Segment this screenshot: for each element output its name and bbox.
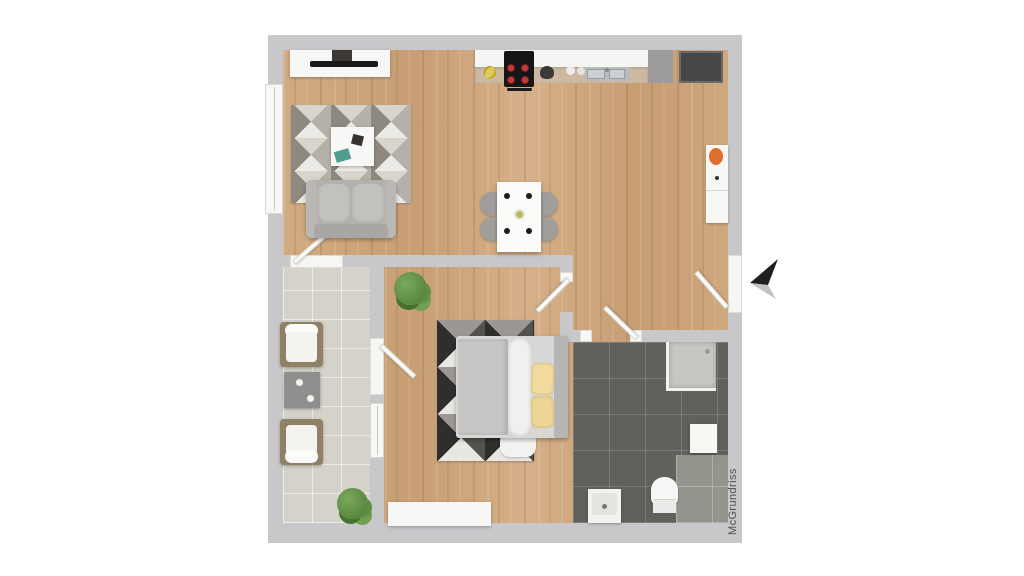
sofa-cushion	[318, 184, 350, 224]
washbasin	[588, 489, 621, 523]
place-setting	[504, 193, 510, 199]
living-room-window	[265, 84, 283, 214]
watermark-text: McGrundriss	[727, 447, 743, 557]
sink-basin	[587, 69, 605, 79]
jar	[577, 67, 585, 75]
plant	[337, 488, 368, 519]
shower	[666, 342, 716, 391]
burner	[507, 64, 515, 72]
chair-cushion	[286, 332, 317, 362]
bathroom-door-frame-left	[580, 330, 592, 342]
burner	[507, 76, 515, 84]
wall-balcony-bedroom-mid	[370, 395, 384, 403]
wall-balcony-bedroom-lower	[370, 458, 384, 523]
chair-backrest	[285, 450, 318, 463]
center-bowl	[514, 209, 525, 220]
toilet-tank	[653, 499, 676, 513]
place-setting	[504, 228, 510, 234]
entrance-door-sill	[728, 255, 742, 313]
oven-handle	[507, 88, 532, 91]
decor-dot	[715, 176, 719, 180]
burner	[521, 76, 529, 84]
bathroom-cabinet	[690, 424, 717, 453]
cooktop	[504, 51, 534, 87]
sofa-cushion	[352, 184, 384, 224]
sofa	[306, 180, 396, 238]
plant	[394, 272, 427, 305]
pillow-yellow	[530, 395, 555, 428]
flower-pot	[484, 66, 496, 79]
bed-blanket	[458, 339, 508, 435]
patio-chair	[280, 419, 323, 465]
double-bed	[456, 336, 568, 438]
coffee-table	[331, 127, 374, 166]
shower-drain	[705, 349, 710, 354]
bedroom-window	[370, 403, 384, 458]
wall-bathroom-top-left	[573, 330, 580, 342]
tv	[310, 61, 378, 67]
book-teal	[334, 148, 351, 163]
hall-sideboard	[706, 145, 728, 223]
jar	[566, 66, 575, 75]
cup	[307, 395, 314, 402]
patio-chair	[280, 322, 323, 367]
floorplan-stage: McGrundriss	[0, 0, 1024, 576]
pillow-yellow	[530, 362, 555, 395]
window-mullion	[274, 87, 275, 211]
faucet	[602, 504, 607, 509]
book-dark	[351, 134, 364, 146]
sofa-backrest	[314, 224, 388, 238]
kettle	[540, 66, 554, 79]
wall-bathroom-top-right	[642, 330, 728, 342]
wardrobe	[388, 502, 491, 526]
window-mullion	[377, 406, 378, 455]
cup	[296, 379, 303, 386]
kitchen-counter	[475, 50, 648, 67]
dark-cabinet	[679, 51, 723, 83]
dining-table	[497, 182, 541, 252]
kitchen-sink	[585, 67, 630, 81]
apartment-plan: McGrundriss	[268, 35, 742, 543]
burner	[521, 64, 529, 72]
bathroom-floor-light-patch	[676, 455, 728, 523]
orange-bowl	[709, 148, 723, 165]
wall-balcony-bedroom-upper	[370, 267, 384, 338]
place-setting	[526, 193, 532, 199]
sideboard-divider	[706, 190, 728, 191]
bed-duvet-roll	[508, 338, 531, 436]
faucet	[605, 68, 609, 72]
patio-side-table	[284, 372, 320, 408]
tall-cabinet	[648, 50, 673, 83]
bed-headboard	[554, 336, 568, 438]
place-setting	[526, 228, 532, 234]
entrance-arrow-icon	[749, 258, 779, 300]
sink-basin	[609, 69, 625, 79]
